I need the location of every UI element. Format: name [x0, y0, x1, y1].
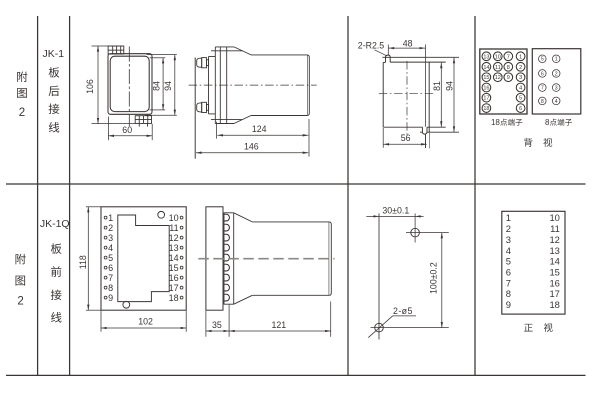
svg-text:121: 121: [271, 320, 286, 330]
svg-text:94: 94: [163, 81, 173, 91]
svg-text:1: 1: [506, 212, 511, 223]
svg-text:81: 81: [432, 81, 442, 91]
svg-text:10: 10: [495, 54, 501, 60]
svg-text:8: 8: [507, 65, 510, 71]
svg-text:10: 10: [169, 213, 179, 223]
svg-text:16: 16: [483, 85, 489, 91]
svg-text:11: 11: [495, 65, 501, 71]
svg-text:2: 2: [506, 223, 511, 234]
svg-text:17: 17: [483, 96, 489, 102]
svg-text:118: 118: [78, 255, 88, 269]
svg-text:9: 9: [108, 293, 113, 303]
svg-text:56: 56: [401, 133, 411, 143]
svg-text:2: 2: [519, 65, 522, 71]
svg-text:5: 5: [541, 57, 544, 63]
svg-text:18: 18: [491, 118, 500, 127]
svg-text:2: 2: [19, 107, 25, 119]
svg-text:2: 2: [555, 71, 558, 77]
svg-text:12: 12: [495, 75, 501, 81]
svg-text:100±0.2: 100±0.2: [429, 262, 439, 294]
svg-text:16: 16: [169, 273, 179, 283]
svg-text:3: 3: [519, 75, 522, 81]
svg-text:3: 3: [108, 233, 113, 243]
svg-text:3: 3: [506, 234, 511, 245]
svg-text:4: 4: [519, 85, 522, 91]
svg-text:6: 6: [108, 263, 113, 273]
svg-text:12: 12: [169, 233, 179, 243]
svg-text:17: 17: [169, 283, 179, 293]
svg-text:94: 94: [444, 81, 454, 91]
svg-text:84: 84: [151, 81, 161, 91]
svg-text:14: 14: [549, 256, 559, 267]
svg-text:1: 1: [108, 213, 113, 223]
svg-text:2: 2: [17, 296, 23, 308]
svg-text:18: 18: [549, 299, 559, 310]
svg-text:13: 13: [483, 54, 489, 60]
svg-text:60: 60: [122, 125, 132, 135]
svg-text:2: 2: [108, 223, 113, 233]
svg-text:12: 12: [549, 234, 559, 245]
svg-text:3: 3: [555, 85, 558, 91]
svg-text:15: 15: [549, 266, 559, 277]
svg-text:15: 15: [483, 75, 489, 81]
svg-text:18: 18: [483, 106, 489, 112]
svg-text:13: 13: [169, 243, 179, 253]
svg-text:14: 14: [169, 253, 179, 263]
svg-text:11: 11: [169, 223, 178, 233]
svg-text:2-ø5: 2-ø5: [393, 306, 413, 316]
svg-text:9: 9: [507, 75, 510, 81]
svg-text:6: 6: [506, 266, 511, 277]
svg-text:7: 7: [507, 54, 510, 60]
svg-text:11: 11: [550, 223, 560, 234]
svg-text:17: 17: [549, 288, 559, 299]
svg-text:6: 6: [519, 106, 522, 112]
svg-text:7: 7: [506, 277, 511, 288]
svg-text:2-R2.5: 2-R2.5: [358, 40, 385, 50]
svg-text:1: 1: [519, 54, 522, 60]
svg-text:106: 106: [85, 79, 95, 94]
svg-text:124: 124: [252, 124, 267, 134]
svg-text:146: 146: [244, 142, 259, 152]
svg-text:4: 4: [506, 245, 511, 256]
svg-text:15: 15: [169, 263, 179, 273]
svg-text:6: 6: [541, 71, 544, 77]
svg-text:16: 16: [549, 277, 559, 288]
svg-text:4: 4: [555, 99, 558, 105]
svg-text:8: 8: [506, 288, 511, 299]
svg-text:JK-1Q: JK-1Q: [40, 218, 70, 230]
svg-text:8: 8: [108, 283, 113, 293]
svg-text:9: 9: [506, 299, 511, 310]
svg-text:10: 10: [549, 212, 559, 223]
svg-text:35: 35: [212, 320, 222, 330]
svg-text:5: 5: [108, 253, 113, 263]
svg-text:13: 13: [549, 245, 559, 256]
svg-text:4: 4: [108, 243, 113, 253]
svg-text:30±0.1: 30±0.1: [382, 206, 409, 216]
svg-text:8: 8: [545, 118, 550, 127]
svg-text:7: 7: [108, 273, 113, 283]
svg-text:8: 8: [541, 99, 544, 105]
svg-text:JK-1: JK-1: [43, 48, 65, 60]
svg-text:1: 1: [555, 57, 558, 63]
svg-text:18: 18: [169, 293, 179, 303]
svg-text:5: 5: [519, 96, 522, 102]
svg-text:102: 102: [138, 316, 153, 326]
svg-text:48: 48: [403, 38, 413, 48]
svg-text:14: 14: [483, 65, 489, 71]
svg-text:7: 7: [541, 85, 544, 91]
svg-text:5: 5: [506, 256, 511, 267]
